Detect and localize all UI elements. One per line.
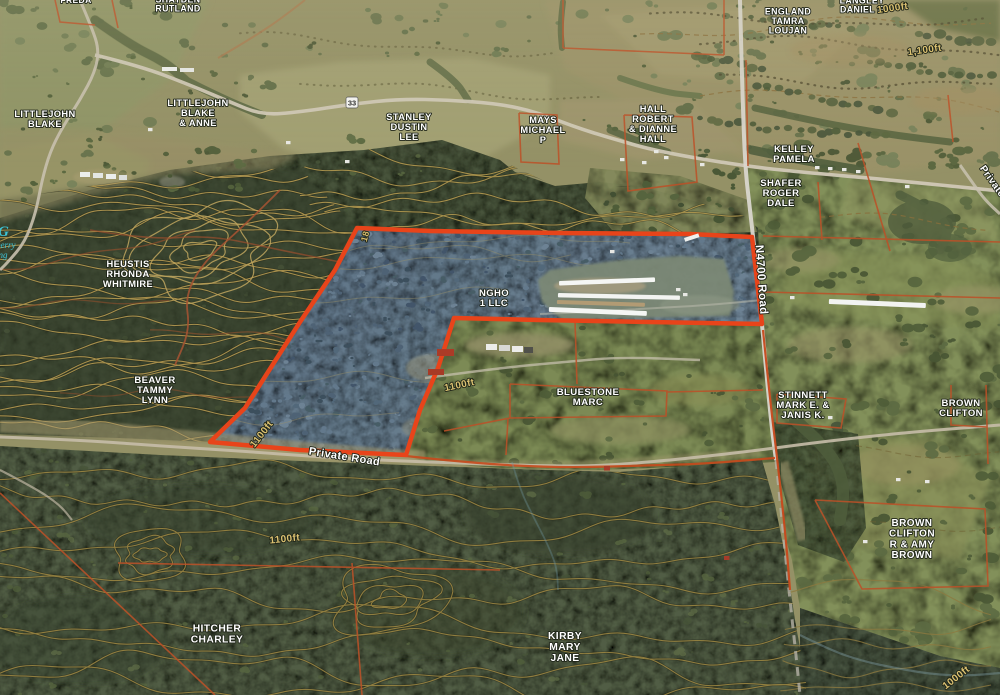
svg-text:LITTLEJOHN: LITTLEJOHN [14,109,75,119]
svg-text:& ANNE: & ANNE [179,118,217,128]
svg-text:1 LLC: 1 LLC [480,298,508,309]
svg-text:LEE: LEE [399,132,418,142]
svg-text:LOUJAN: LOUJAN [769,25,808,35]
svg-text:WHITMIRE: WHITMIRE [103,279,153,289]
svg-text:CLIFTON: CLIFTON [889,529,935,540]
svg-text:P: P [540,135,547,145]
svg-text:STANLEY: STANLEY [386,112,432,122]
svg-text:ROBERT: ROBERT [632,114,674,124]
svg-text:FREDA: FREDA [60,0,91,5]
svg-text:DUSTIN: DUSTIN [390,122,427,132]
svg-text:MICHAEL: MICHAEL [520,125,565,135]
svg-text:CHARLEY: CHARLEY [191,635,244,646]
svg-text:G: G [0,224,9,240]
svg-text:KIRBY: KIRBY [548,631,582,642]
svg-text:RHONDA: RHONDA [106,269,149,279]
svg-text:LYNN: LYNN [142,395,169,406]
svg-text:JANE: JANE [550,653,579,664]
svg-text:R & AMY: R & AMY [890,539,935,550]
svg-text:& DIANNE: & DIANNE [629,124,677,134]
svg-text:MARY: MARY [549,642,581,653]
svg-text:HALL: HALL [640,104,666,114]
svg-text:33: 33 [348,99,356,108]
svg-text:DALE: DALE [767,198,794,209]
svg-text:MAYS: MAYS [529,115,557,125]
svg-text:LITTLEJOHN: LITTLEJOHN [167,98,228,108]
svg-text:berry: berry [0,240,16,250]
svg-text:BLAKE: BLAKE [181,108,215,118]
svg-text:PAMELA: PAMELA [773,154,815,165]
svg-text:HITCHER: HITCHER [193,624,242,635]
svg-text:MARC: MARC [573,397,603,408]
svg-text:JANIS K.: JANIS K. [781,410,824,421]
svg-text:BLAKE: BLAKE [28,119,62,129]
svg-text:BROWN: BROWN [892,518,933,529]
svg-text:HALL: HALL [640,134,666,144]
svg-text:BROWN: BROWN [892,550,933,561]
svg-text:HEUSTIS: HEUSTIS [106,259,149,269]
svg-text:RUTLAND: RUTLAND [155,4,200,14]
svg-text:ing: ing [0,250,8,260]
svg-text:CLIFTON: CLIFTON [939,408,983,419]
